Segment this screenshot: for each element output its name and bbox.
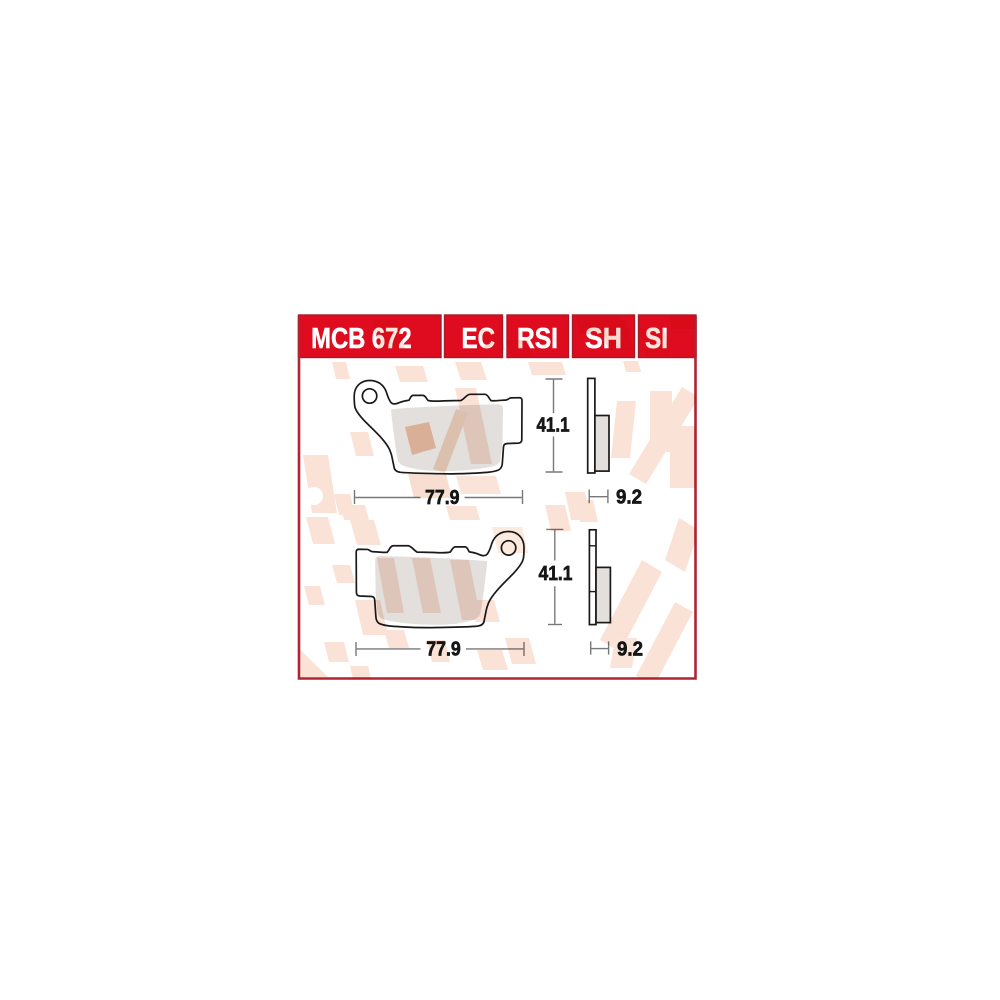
svg-text:41.1: 41.1 <box>537 414 570 436</box>
svg-text:41.1: 41.1 <box>539 563 573 585</box>
svg-text:9.2: 9.2 <box>616 486 642 508</box>
